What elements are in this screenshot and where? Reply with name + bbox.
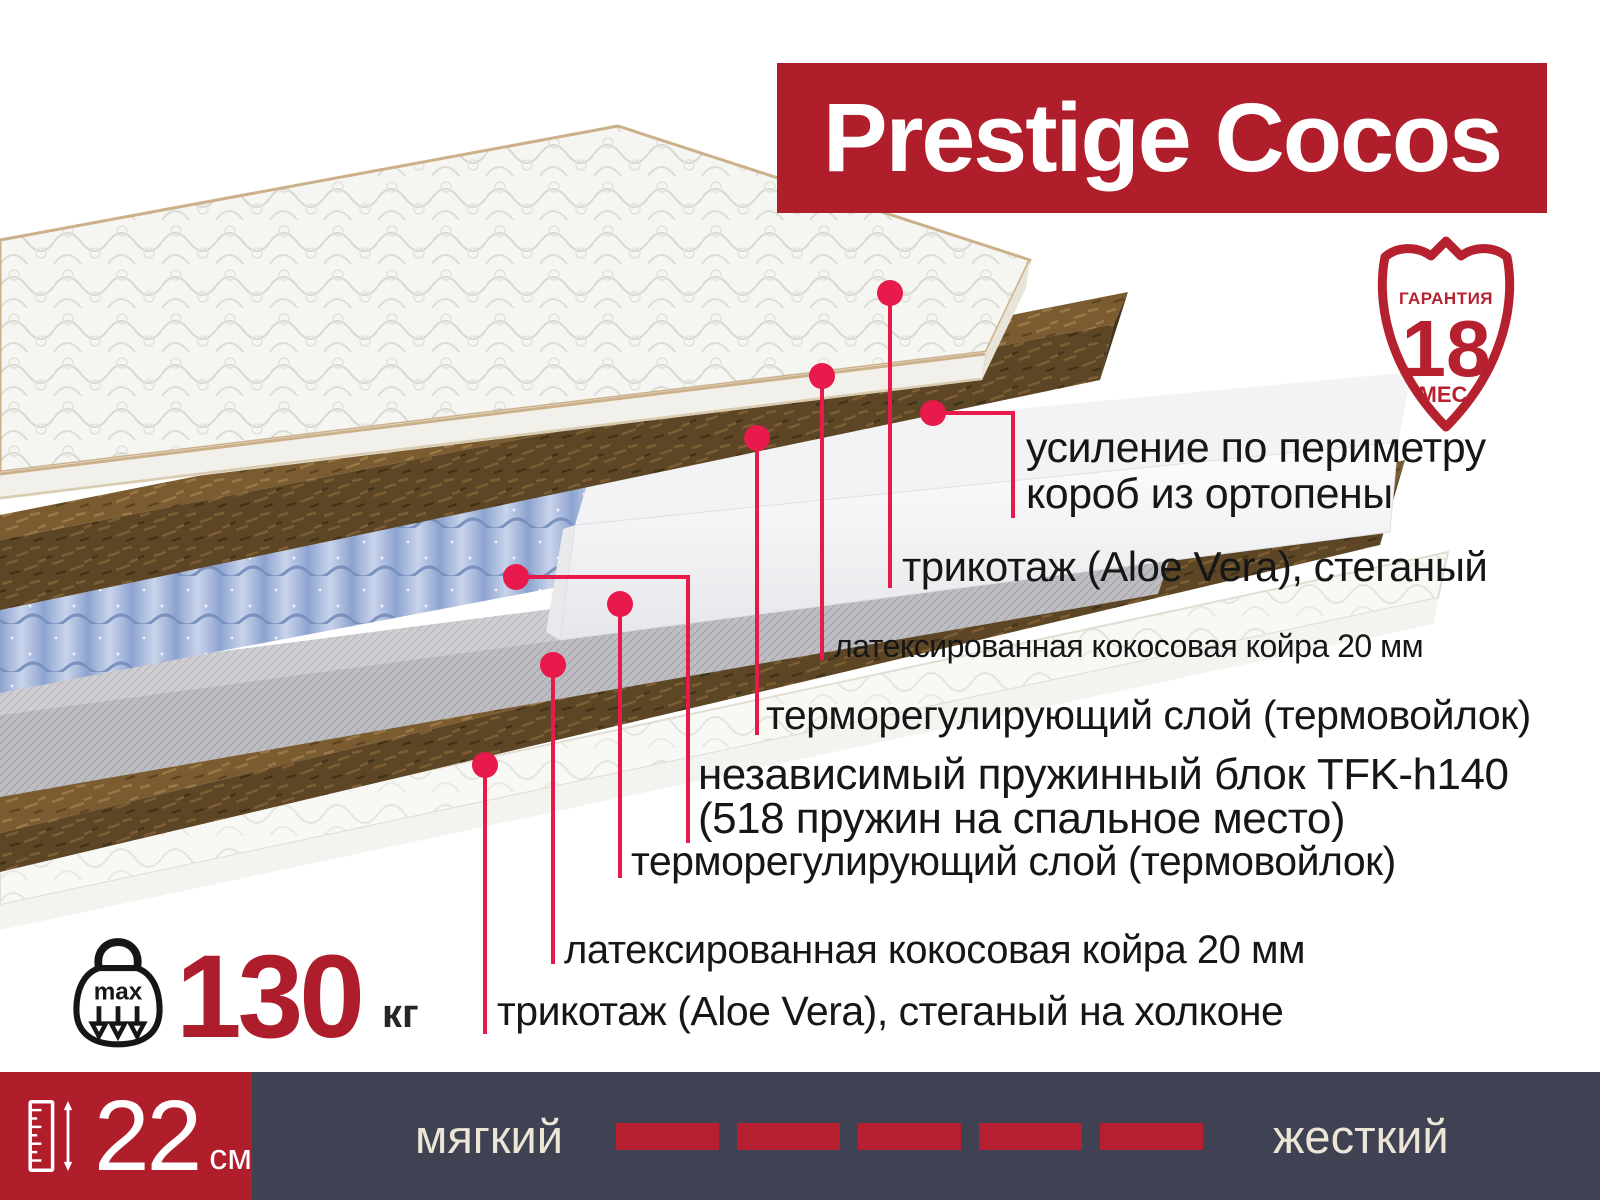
callout-dot (877, 280, 903, 306)
bottom-info-bar: 22 см мягкий жесткий (0, 1072, 1600, 1200)
callout-dot (472, 752, 498, 778)
callout-dot (540, 652, 566, 678)
product-title: Prestige Cocos (823, 82, 1501, 194)
callout-dot (607, 591, 633, 617)
kettlebell-max-label: max (94, 978, 143, 1005)
firmness-dash (858, 1123, 961, 1150)
ruler-height-icon (26, 1086, 82, 1186)
callout-dot (920, 400, 946, 426)
max-weight-unit: кг (382, 992, 419, 1037)
warranty-shield-icon: ГАРАНТИЯ 18 МЕС. (1358, 234, 1534, 434)
callout-label-top-coco-coir: латексированная кокосовая койра 20 мм (834, 628, 1423, 665)
firmness-scale: мягкий жесткий (252, 1072, 1600, 1200)
callout-label-spring-block: независимый пружинный блок TFK-h140 (518… (698, 753, 1508, 841)
callout-label-top-thermo-felt: терморегулирующий слой (термовойлок) (766, 692, 1531, 739)
callout-dot (809, 363, 835, 389)
max-weight-value: 130 (176, 938, 361, 1056)
down-arrows-icon (92, 1006, 144, 1036)
warranty-bottom-label: МЕС. (1419, 382, 1474, 407)
firmness-dash (979, 1123, 1082, 1150)
firmness-dash (737, 1123, 840, 1150)
mattress-height-unit: см (209, 1136, 252, 1178)
callout-dot (503, 564, 529, 590)
callout-dot (744, 425, 770, 451)
callout-label-bottom-thermo-felt: терморегулирующий слой (термовойлок) (631, 838, 1396, 885)
firmness-hard-label: жесткий (1273, 1109, 1449, 1164)
product-infographic: Prestige Cocos ГАРАНТИЯ 18 МЕС. усиление… (0, 0, 1600, 1200)
warranty-value: 18 (1402, 304, 1491, 393)
kettlebell-max-weight-icon: max (66, 922, 170, 1054)
title-banner: Prestige Cocos (777, 63, 1547, 213)
callout-label-bottom-knit-cover: трикотаж (Aloe Vera), стеганый на холкон… (497, 988, 1283, 1035)
mattress-height-value: 22 (94, 1086, 199, 1186)
firmness-soft-label: мягкий (415, 1109, 563, 1164)
callout-label-bottom-coco-coir: латексированная кокосовая койра 20 мм (564, 928, 1305, 973)
callout-label-top-knit-cover: трикотаж (Aloe Vera), стеганый (902, 543, 1487, 591)
firmness-dash (1100, 1123, 1203, 1150)
firmness-dash (616, 1123, 719, 1150)
firmness-dashes (616, 1123, 1203, 1150)
height-chip: 22 см (0, 1072, 252, 1200)
callout-label-perimeter-reinforcement: усиление по периметру короб из ортопены (1026, 425, 1486, 517)
